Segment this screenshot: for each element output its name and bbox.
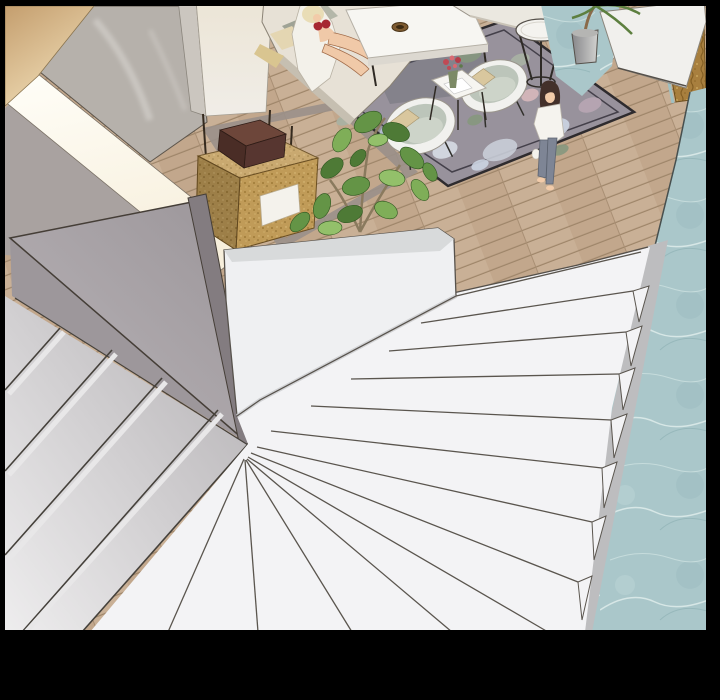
comic-panel bbox=[0, 0, 720, 700]
white-column bbox=[178, 0, 272, 116]
face bbox=[313, 14, 321, 22]
scene-illustration bbox=[0, 0, 720, 700]
red-bikini-top bbox=[322, 20, 331, 29]
foot bbox=[546, 186, 554, 191]
white-shirt bbox=[534, 104, 564, 142]
blonde-hair bbox=[302, 5, 324, 23]
foot bbox=[537, 178, 545, 183]
